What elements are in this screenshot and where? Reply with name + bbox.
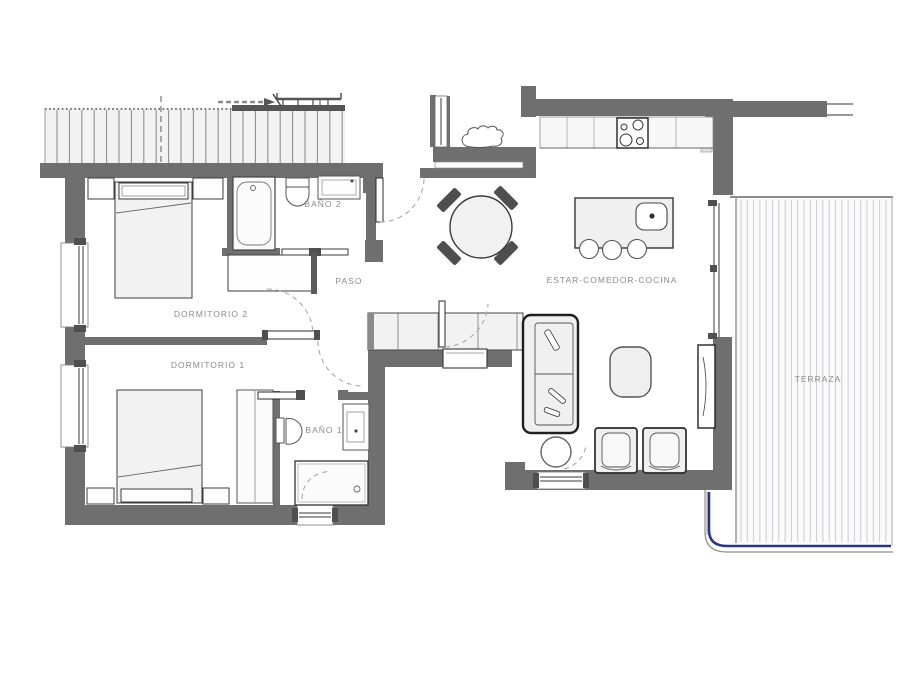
window-dormitorio2 <box>61 238 88 332</box>
label-paso: PASO <box>336 276 363 286</box>
bathtub <box>233 177 275 250</box>
entry-bench <box>462 126 503 148</box>
bano2-fixtures <box>233 176 360 250</box>
coffee-table <box>610 347 651 397</box>
cooktop <box>617 118 648 148</box>
wall-segment <box>433 147 533 162</box>
wall-segment <box>65 178 85 515</box>
wall-segment <box>713 337 732 490</box>
tv-unit <box>698 345 715 428</box>
floor-plan-page: DORMITORIO 2 DORMITORIO 1 BAÑO 2 BAÑO 1 … <box>0 0 900 675</box>
terrace-sliding-door <box>708 200 719 339</box>
wardrobe <box>237 390 273 503</box>
toilet <box>276 418 302 444</box>
wall-segment <box>533 99 715 116</box>
entry-threshold <box>435 162 523 168</box>
dormitorio1-furniture <box>87 390 273 504</box>
window-living <box>533 472 589 489</box>
wall-segment <box>523 147 536 178</box>
window-entry <box>435 96 447 147</box>
bar-stool <box>580 240 599 259</box>
wall-segment <box>447 96 450 147</box>
bar-stool <box>628 240 647 259</box>
louvre-strip <box>45 96 345 165</box>
wall-segment <box>420 168 536 178</box>
washbasin <box>318 176 360 199</box>
side-table <box>541 437 571 467</box>
label-dormitorio2: DORMITORIO 2 <box>174 309 248 319</box>
floor-plan-canvas: DORMITORIO 2 DORMITORIO 1 BAÑO 2 BAÑO 1 … <box>0 0 900 675</box>
wall-segment <box>273 391 280 505</box>
living-room-furniture <box>368 313 715 473</box>
wall-segment <box>365 240 383 262</box>
nightstand <box>203 488 229 504</box>
nightstand <box>193 178 223 199</box>
wall-segment <box>733 101 827 117</box>
faucet-icon <box>649 213 654 218</box>
dining-set <box>436 185 518 265</box>
arrow-icon <box>264 98 275 106</box>
armchair <box>595 428 637 473</box>
dining-table <box>450 196 512 258</box>
shower <box>295 461 368 505</box>
label-bano1: BAÑO 1 <box>305 425 342 435</box>
label-estar-comedor-cocina: ESTAR-COMEDOR-COCINA <box>547 275 678 285</box>
wall-segment <box>521 86 536 117</box>
kitchen <box>540 117 713 260</box>
double-bed <box>117 390 202 503</box>
nightstand <box>87 488 114 504</box>
label-dormitorio1: DORMITORIO 1 <box>171 360 245 370</box>
door-entry <box>376 178 424 222</box>
armchair <box>643 428 686 473</box>
label-terraza: TERRAZA <box>795 374 842 384</box>
window-dormitorio1 <box>61 360 88 452</box>
window-bano1 <box>292 505 338 525</box>
wall-segment <box>68 337 267 345</box>
sofa <box>523 315 578 433</box>
dresser <box>228 255 313 291</box>
wall-segment <box>368 350 385 523</box>
bar-stool <box>603 241 622 260</box>
wall-segment <box>713 99 733 195</box>
washbasin <box>343 404 369 450</box>
nightstand <box>88 178 114 199</box>
wall-segment <box>338 390 348 400</box>
wall-segment <box>368 350 512 367</box>
wall-segment <box>366 193 376 242</box>
bano1-fixtures <box>276 404 369 505</box>
radiator <box>443 349 487 368</box>
door-bano1 <box>258 390 305 400</box>
entry-vestibule <box>462 126 503 148</box>
door-bedrooms <box>262 289 363 386</box>
double-bed <box>115 182 192 298</box>
label-bano2: BAÑO 2 <box>304 199 341 209</box>
